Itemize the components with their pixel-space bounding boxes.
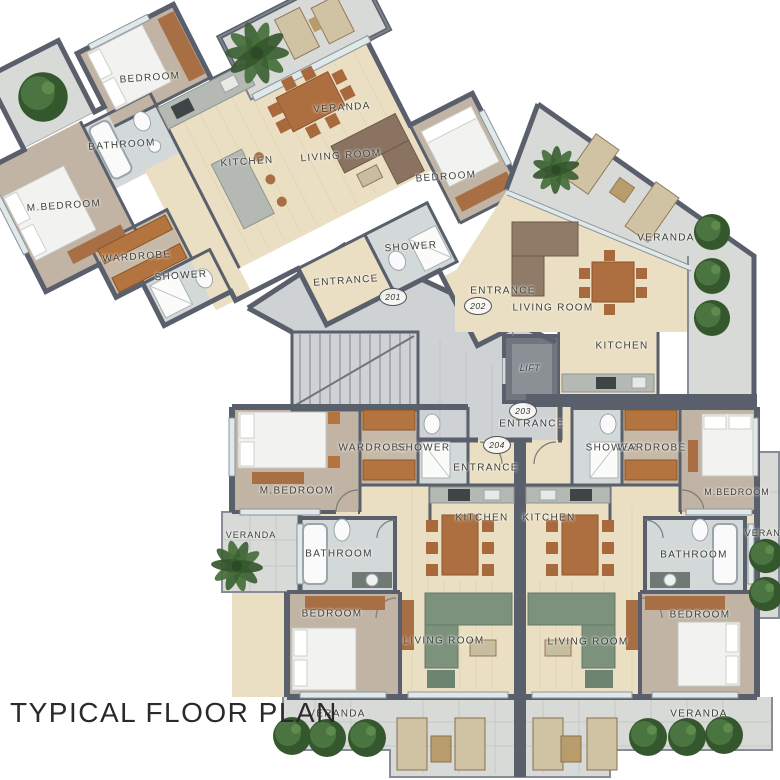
unit-badge-203: 203 [509,402,537,420]
floor-plan-page: BEDROOM BATHROOM M.BEDROOM WARDROBE SHOW… [0,0,780,780]
page-title: TYPICAL FLOOR PLAN [10,697,338,729]
unit-badge-204: 204 [483,436,511,454]
floor-plan-drawing [0,0,780,780]
unit-badge-201: 201 [379,288,407,306]
unit-badge-202: 202 [464,297,492,315]
